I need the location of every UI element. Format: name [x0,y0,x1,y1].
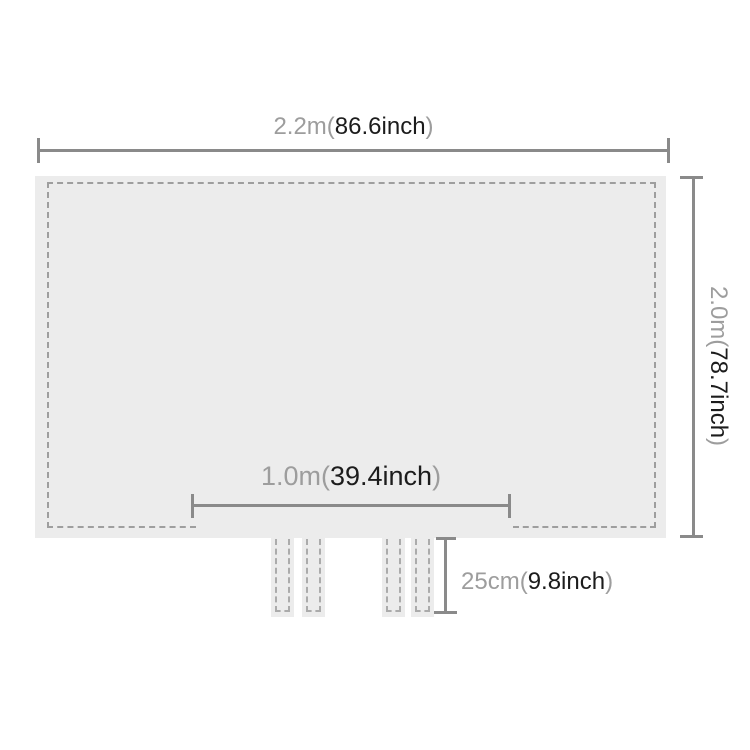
strap-length-inches-text: 9.8inch [528,568,605,595]
inner-width-metric-text: 1.0m( [261,461,330,491]
strap-length-metric-text: 25cm( [461,568,528,595]
stitch-border-left [47,182,49,528]
height-metric-text: 2.0m( [705,286,732,347]
strap-length-dimension-label: 25cm(9.8inch) [461,569,613,595]
stitch-border-right [654,182,656,528]
height-dimension-label: 2.0m(78.7inch) [705,281,731,451]
width-metric-text: 2.2m( [273,113,334,140]
height-dimension-bottom-cap [680,535,703,538]
strap-length-paren-text: ) [605,568,613,595]
strap-length-top-cap [436,537,456,540]
inner-width-left-cap [191,494,194,518]
height-inches-text: 78.7inch [705,347,732,438]
inner-width-inches-text: 39.4inch [330,461,432,491]
inner-width-dimension-line [192,504,510,507]
strap-stitch-border [415,539,430,612]
hanging-strap [271,537,294,617]
width-dimension-left-cap [37,138,40,163]
height-paren-text: ) [705,438,732,446]
width-dimension-right-cap [667,138,670,163]
strap-length-bottom-cap [434,611,457,614]
hanging-strap [302,537,325,617]
width-paren-text: ) [426,113,434,140]
width-dimension-line [38,149,669,152]
height-dimension-line [692,176,695,538]
width-inches-text: 86.6inch [335,113,426,140]
height-dimension-top-cap [680,176,703,179]
stitch-border-top [47,182,656,184]
strap-stitch-border [275,539,290,612]
strap-stitch-border [386,539,401,612]
inner-width-paren-text: ) [432,461,441,491]
hanging-strap [382,537,405,617]
width-dimension-label: 2.2m(86.6inch) [38,114,669,140]
strap-length-dimension-line [444,538,447,614]
dimension-diagram: 2.2m(86.6inch) 1.0m(39.4inch) 2.0m(78.7i… [0,0,750,750]
inner-width-dimension-label: 1.0m(39.4inch) [192,462,510,492]
inner-width-right-cap [508,494,511,518]
stitch-border-bottom-right [513,526,656,528]
hanging-strap [411,537,434,617]
stitch-border-bottom-left [47,526,196,528]
strap-stitch-border [306,539,321,612]
